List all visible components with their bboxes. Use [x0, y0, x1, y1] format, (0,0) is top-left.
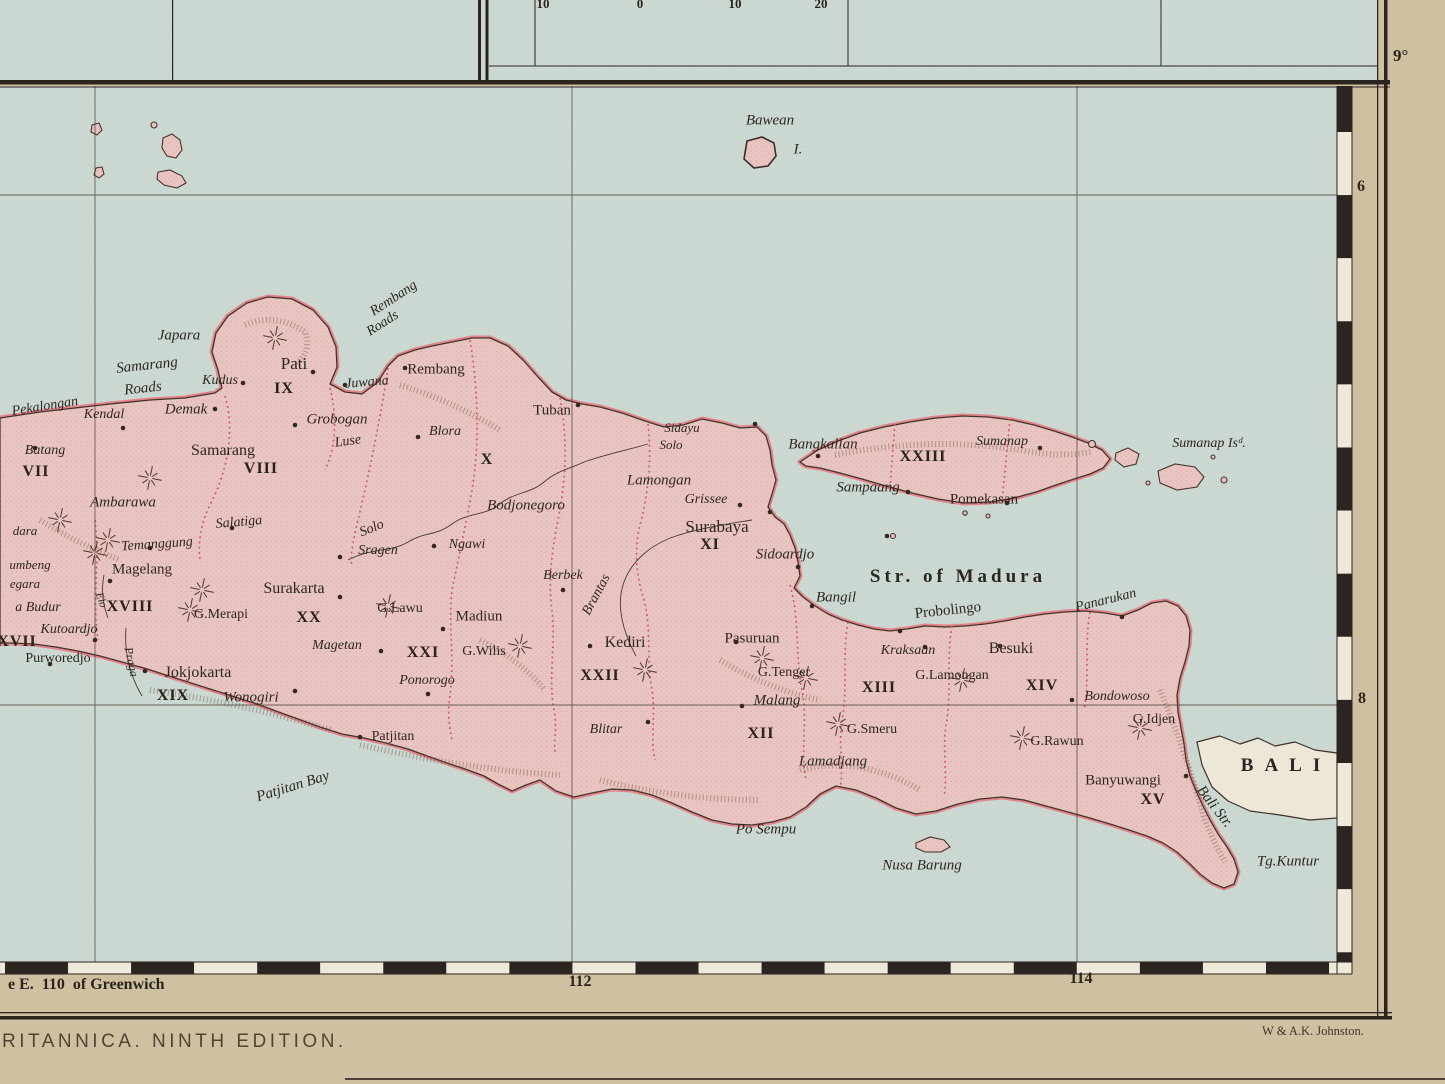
inset-divider-left [478, 0, 481, 80]
town-dot [403, 366, 408, 371]
town-dot [998, 644, 1003, 649]
tick-band-segment [68, 962, 131, 974]
town-dot [108, 579, 113, 584]
scale-number-2: 10 [729, 0, 742, 12]
town-dot [923, 645, 928, 650]
tick-band-segment [1337, 511, 1352, 574]
tick-band-segment [888, 962, 951, 974]
tick-band-segment [1337, 637, 1352, 700]
map-canvas [0, 0, 1445, 1084]
longitude-label-114: 114 [1069, 970, 1092, 988]
tick-band-segment [1337, 952, 1352, 962]
town-dot [311, 370, 316, 375]
town-dot [588, 644, 593, 649]
town-dot [885, 534, 890, 539]
town-dot [432, 544, 437, 549]
tick-band-segment [5, 962, 68, 974]
town-dot [293, 423, 298, 428]
tick-band-segment [1337, 763, 1352, 826]
town-dot [338, 555, 343, 560]
tick-band-segment [636, 962, 699, 974]
tick-band-segment [699, 962, 762, 974]
town-dot [358, 735, 363, 740]
town-dot [148, 546, 153, 551]
scale-number-3: 20 [815, 0, 828, 12]
tick-band-segment [1140, 962, 1203, 974]
town-dot [379, 649, 384, 654]
tick-band-segment [257, 962, 320, 974]
town-dot [1120, 615, 1125, 620]
town-dot [241, 381, 246, 386]
tick-band-segment [1337, 258, 1352, 321]
latitude-label-9: 9° [1393, 46, 1408, 66]
latitude-label-6: 6 [1357, 178, 1365, 196]
tick-band-segment [1337, 448, 1352, 511]
town-dot [1005, 501, 1010, 506]
town-dot [1070, 698, 1075, 703]
town-dot [441, 627, 446, 632]
inset-box-edge [172, 0, 173, 80]
town-dot [293, 689, 298, 694]
town-dot [143, 669, 148, 674]
town-dot [230, 526, 235, 531]
tick-band-segment [446, 962, 509, 974]
town-dot [1184, 774, 1189, 779]
tick-band-segment [1337, 826, 1352, 889]
town-dot [338, 595, 343, 600]
edition-caption: RITANNICA. NINTH EDITION. [2, 1031, 347, 1053]
town-dot [93, 638, 98, 643]
town-dot [768, 510, 773, 515]
town-dot [810, 604, 815, 609]
antique-map-of-java: BaweanI.Str. of MaduraBALIBali Str.Tg.Ku… [0, 0, 1445, 1084]
tick-band-segment [1337, 321, 1352, 384]
inset-scale-baseline [489, 66, 1378, 67]
tick-band-segment [1337, 195, 1352, 258]
tick-band-segment [1337, 889, 1352, 952]
tick-band-segment [0, 962, 5, 974]
town-dot [646, 720, 651, 725]
tick-band-segment [509, 962, 572, 974]
cartographer-attribution: W & A.K. Johnston. [1262, 1024, 1364, 1039]
town-dot [426, 692, 431, 697]
town-dot [576, 403, 581, 408]
town-dot [906, 490, 911, 495]
tick-band-segment [762, 962, 825, 974]
scale-number-0: 10 [537, 0, 550, 12]
tick-band-segment [1337, 574, 1352, 637]
town-dot [343, 383, 348, 388]
tick-band-segment [1337, 132, 1352, 195]
town-dot [740, 704, 745, 709]
tick-band-segment [1337, 86, 1352, 132]
town-dot [33, 446, 38, 451]
town-dot [561, 588, 566, 593]
tick-band-segment [1329, 962, 1352, 974]
scale-number-1: 0 [637, 0, 644, 12]
plate-edge-line [345, 1078, 1445, 1080]
tick-band-segment [194, 962, 257, 974]
tick-band-segment [1203, 962, 1266, 974]
tick-band-segment [320, 962, 383, 974]
town-dot [898, 629, 903, 634]
town-dot [213, 407, 218, 412]
town-dot [753, 422, 758, 427]
town-dot [1038, 446, 1043, 451]
longitude-label-112: 112 [568, 973, 591, 991]
tick-band-segment [1337, 700, 1352, 763]
sea-top-strip [0, 0, 1378, 82]
town-dot [416, 435, 421, 440]
town-dot [796, 565, 801, 570]
tick-band-segment [951, 962, 1014, 974]
tick-band-segment [825, 962, 888, 974]
tick-band-segment [1014, 962, 1077, 974]
latitude-label-8: 8 [1358, 690, 1366, 708]
tick-band-segment [131, 962, 194, 974]
town-dot [48, 662, 53, 667]
town-dot [816, 454, 821, 459]
town-dot [738, 503, 743, 508]
inset-divider-right [486, 0, 489, 80]
tick-band-segment [1337, 384, 1352, 447]
longitude-greenwich-label: e E. 110 of Greenwich [8, 976, 165, 994]
tick-band-segment [383, 962, 446, 974]
town-dot [734, 640, 739, 645]
town-dot [121, 426, 126, 431]
tick-band-segment [1266, 962, 1329, 974]
